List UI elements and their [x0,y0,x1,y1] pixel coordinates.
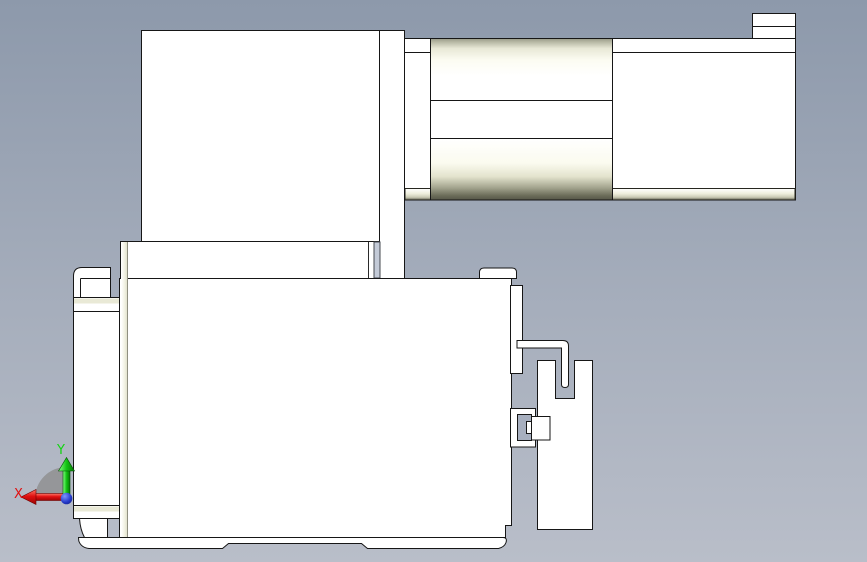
slider-tab-top-right[interactable] [480,268,517,279]
x-axis-label: X [14,487,23,502]
sensor-clip-tab[interactable] [532,417,551,441]
motor-flange-plate[interactable] [121,242,380,279]
side-plate-bottom-shading [74,507,119,512]
coupling-cylinder-lower[interactable] [431,139,613,201]
flange-steel-facet [374,242,380,278]
clamp-tab-bottom-left[interactable] [80,519,108,538]
coupling-cylinder-upper[interactable] [431,39,613,101]
side-plate-top-shading [74,299,119,304]
cad-canvas[interactable]: X Y [0,0,867,562]
carriage-left-facet [121,242,127,537]
motor-block[interactable] [142,31,380,242]
y-axis-label: Y [56,443,65,458]
sensor-rail-strip[interactable] [511,286,523,374]
carriage-body[interactable] [120,279,512,538]
z-axis-origin-icon[interactable] [61,493,73,505]
side-plate-left[interactable] [74,298,120,519]
clamp-tab-top-left[interactable] [74,268,111,298]
cad-viewport[interactable]: X Y [0,0,867,562]
